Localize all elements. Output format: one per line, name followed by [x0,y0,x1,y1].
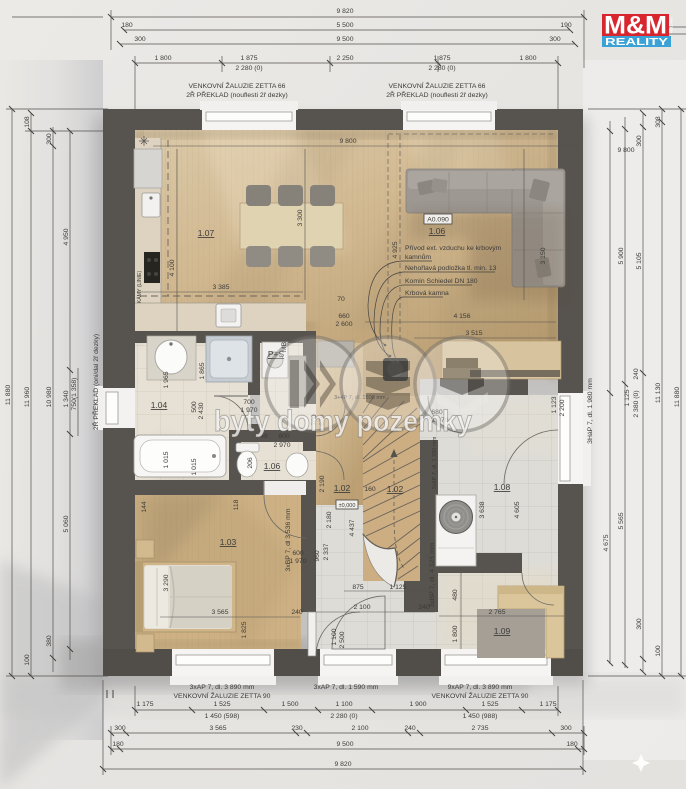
svg-text:9 820: 9 820 [336,8,353,15]
svg-text:2 380 (0): 2 380 (0) [633,390,640,417]
svg-text:1 525: 1 525 [213,701,230,708]
svg-text:3 565: 3 565 [209,725,226,732]
svg-text:3 638: 3 638 [479,501,486,518]
svg-text:1 125: 1 125 [624,389,631,406]
svg-text:3 385: 3 385 [212,284,229,291]
svg-text:5 500: 5 500 [336,22,353,29]
svg-text:180: 180 [112,741,124,748]
svg-text:1 865: 1 865 [199,362,206,379]
svg-text:300: 300 [114,725,126,732]
svg-text:2 500: 2 500 [339,631,346,648]
svg-text:kamnům: kamnům [405,253,431,261]
svg-text:1.03: 1.03 [220,537,237,547]
svg-text:VENKOVNÍ ŽALUZIE ZETTA 90: VENKOVNÍ ŽALUZIE ZETTA 90 [432,691,529,700]
svg-text:1 825: 1 825 [241,621,248,638]
svg-text:3x6P 7, dl. 1 290 mm: 3x6P 7, dl. 1 290 mm [432,436,438,489]
svg-text:875: 875 [352,584,364,591]
svg-text:M&M: M&M [604,12,667,40]
svg-text:4 605: 4 605 [514,501,521,518]
svg-text:Komín Schiedel DN 180: Komín Schiedel DN 180 [405,278,478,285]
svg-text:A0.090: A0.090 [427,217,449,224]
svg-text:1 100: 1 100 [335,701,352,708]
svg-text:3xBP 7, dl 3 536 mm: 3xBP 7, dl 3 536 mm [285,508,292,571]
svg-text:4 675: 4 675 [603,534,610,551]
svg-text:500: 500 [191,401,198,413]
svg-text:300: 300 [636,618,643,630]
svg-text:230: 230 [291,725,303,732]
svg-text:600: 600 [292,550,304,557]
svg-text:2 765: 2 765 [488,609,505,616]
svg-text:9xAP 7, dl. 3 890 mm: 9xAP 7, dl. 3 890 mm [448,684,513,691]
svg-text:11 130: 11 130 [655,383,662,404]
svg-text:5 105: 5 105 [636,252,643,269]
svg-text:3xAP 7, dl. 3 890 mm: 3xAP 7, dl. 3 890 mm [190,684,255,691]
svg-text:3 565: 3 565 [211,609,228,616]
svg-text:144: 144 [141,501,148,513]
svg-text:1.04: 1.04 [151,400,168,410]
svg-text:3 290: 3 290 [163,574,170,591]
svg-text:VENKOVNÍ ŽALUZIE ZETTA 66: VENKOVNÍ ŽALUZIE ZETTA 66 [189,81,286,90]
svg-text:VENKOVNÍ ŽALUZIE ZETTA 66: VENKOVNÍ ŽALUZIE ZETTA 66 [389,81,486,90]
svg-text:100: 100 [24,654,31,666]
svg-text:Krbová kamna: Krbová kamna [405,290,449,297]
svg-text:1 015: 1 015 [163,451,170,468]
svg-text:11 960: 11 960 [24,387,31,408]
svg-text:1.09: 1.09 [494,626,511,636]
svg-text:5 900: 5 900 [618,247,625,264]
svg-text:660: 660 [338,313,350,320]
svg-text:1 015: 1 015 [191,458,198,475]
svg-text:4 437: 4 437 [349,519,356,536]
svg-text:960: 960 [314,550,321,562]
svg-text:3xBP 7, dl. 4 325 mm: 3xBP 7, dl. 4 325 mm [429,542,436,607]
svg-text:1.06: 1.06 [264,461,281,471]
svg-text:4 156: 4 156 [453,313,470,320]
svg-text:2 600: 2 600 [335,321,352,328]
svg-text:240: 240 [633,368,640,380]
svg-text:1 175: 1 175 [539,701,556,708]
svg-text:9 800: 9 800 [339,138,356,145]
svg-text:300: 300 [134,36,146,43]
svg-text:2 430: 2 430 [198,402,205,419]
svg-text:2Ř PŘEKLAD (nouflesti 2ř dezky: 2Ř PŘEKLAD (nouflesti 2ř dezky) [186,90,288,99]
svg-text:4 925: 4 925 [392,241,399,258]
svg-text:240: 240 [291,609,303,616]
svg-text:10 980: 10 980 [46,386,53,407]
svg-text:1 800: 1 800 [452,625,459,642]
svg-text:206: 206 [247,457,254,469]
svg-text:2 280 (0): 2 280 (0) [235,65,262,72]
svg-text:180: 180 [121,22,133,29]
svg-text:3xAP 7, dl. 1 590 mm: 3xAP 7, dl. 1 590 mm [314,684,379,691]
svg-text:1 125: 1 125 [389,584,406,591]
svg-text:100: 100 [655,645,662,657]
svg-text:180: 180 [566,741,578,748]
svg-text:1 875: 1 875 [240,55,257,62]
svg-text:380: 380 [46,635,53,647]
svg-text:308: 308 [655,116,662,128]
svg-text:2 100: 2 100 [353,604,370,611]
svg-text:1.02: 1.02 [387,484,404,494]
svg-text:1 450 (598): 1 450 (598) [205,713,240,720]
svg-text:2 337: 2 337 [323,543,330,560]
svg-text:9 820: 9 820 [334,761,351,768]
svg-text:3 150: 3 150 [540,247,547,264]
svg-text:9 800: 9 800 [617,147,634,154]
svg-text:9 500: 9 500 [336,741,353,748]
svg-text:1 123: 1 123 [551,396,558,413]
svg-text:1 450 (988): 1 450 (988) [463,713,498,720]
svg-text:Přívod ext. vzduchu ke krbovým: Přívod ext. vzduchu ke krbovým [405,245,502,252]
svg-text:11 880: 11 880 [674,387,681,408]
svg-text:1.02: 1.02 [334,483,351,493]
svg-text:160: 160 [364,486,376,493]
svg-text:2 180: 2 180 [326,511,333,528]
svg-text:300: 300 [560,725,572,732]
svg-text:1 175: 1 175 [136,701,153,708]
svg-text:2 100: 2 100 [351,725,368,732]
svg-text:190: 190 [560,22,572,29]
svg-text:2 190: 2 190 [319,475,326,492]
svg-text:4 950: 4 950 [63,228,70,245]
svg-text:240: 240 [404,725,416,732]
svg-text:2 280 (0): 2 280 (0) [428,65,455,72]
svg-text:2Ř PŘEKLAD (nouflesti 2ř dezky: 2Ř PŘEKLAD (nouflesti 2ř dezky) [386,90,488,99]
svg-text:11 880: 11 880 [5,385,12,406]
svg-text:Nehořlavá podložka tl. min. 13: Nehořlavá podložka tl. min. 13 [405,265,497,272]
svg-text:1 100: 1 100 [331,628,338,645]
svg-text:70: 70 [337,296,345,303]
svg-text:9 500: 9 500 [336,36,353,43]
svg-text:REALITY: REALITY [605,37,668,48]
svg-text:1 970: 1 970 [289,558,306,565]
svg-text:5 565: 5 565 [618,512,625,529]
svg-text:1.08: 1.08 [494,482,511,492]
svg-text:1.06: 1.06 [429,226,446,236]
svg-text:480: 480 [452,589,459,601]
svg-text:KÁMY (LINIE): KÁMY (LINIE) [136,270,143,303]
svg-text:byty domy pozemky: byty domy pozemky [214,405,472,438]
svg-text:750(1 358): 750(1 358) [71,378,78,411]
svg-text:1 800: 1 800 [519,55,536,62]
svg-text:300: 300 [549,36,561,43]
svg-text:300: 300 [636,135,643,147]
svg-text:300: 300 [46,133,53,145]
svg-text:1 340: 1 340 [63,390,70,407]
svg-text:2Ř PŘEKLAD (oni/dal 2ř dezky): 2Ř PŘEKLAD (oni/dal 2ř dezky) [91,334,100,430]
svg-text:1 965: 1 965 [163,371,170,388]
svg-text:2 280 (0): 2 280 (0) [330,713,357,720]
svg-text:1.07: 1.07 [198,228,215,238]
svg-text:2 735: 2 735 [471,725,488,732]
svg-text:5 060: 5 060 [63,515,70,532]
svg-text:1 800: 1 800 [154,55,171,62]
svg-text:1 900: 1 900 [409,701,426,708]
svg-text:1 875: 1 875 [433,55,450,62]
svg-text:1 500: 1 500 [281,701,298,708]
svg-text:HOLDING: HOLDING [670,17,674,33]
svg-text:VENKOVNÍ ŽALUZIE ZETTA 90: VENKOVNÍ ŽALUZIE ZETTA 90 [174,691,271,700]
svg-text:2 200: 2 200 [559,399,566,416]
svg-text:3HáP 7, dl. 1 980 mm: 3HáP 7, dl. 1 980 mm [587,378,594,444]
svg-text:1 525: 1 525 [481,701,498,708]
svg-text:2 250: 2 250 [336,55,353,62]
svg-text:108: 108 [24,116,31,128]
svg-text:118: 118 [233,499,240,510]
svg-text:4 100: 4 100 [169,259,176,276]
svg-text:2 970: 2 970 [273,442,290,449]
svg-text:3 300: 3 300 [297,209,304,226]
svg-text:±0,000: ±0,000 [339,503,356,509]
